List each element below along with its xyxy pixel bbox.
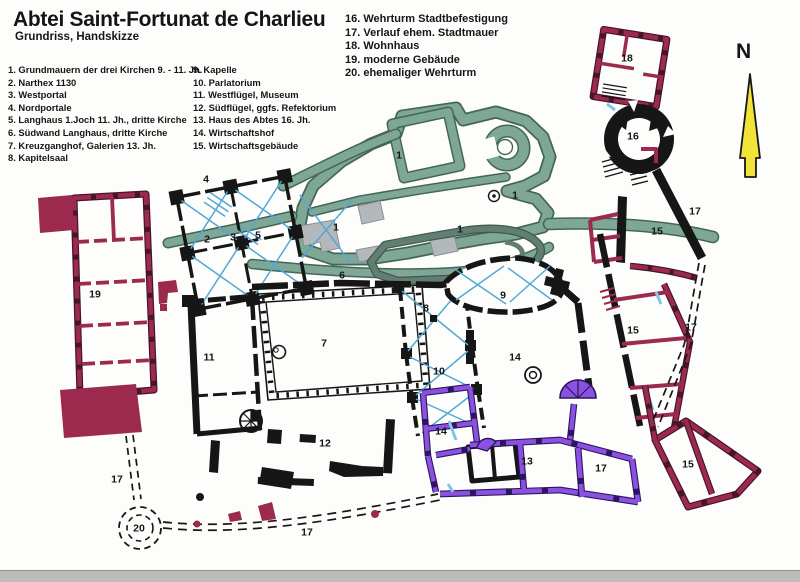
legend-column-1: 1. Grundmauern der drei Kirchen 9. - 11.… [8, 64, 202, 165]
plan-label-14: 14 [509, 353, 521, 363]
plan-label-11: 11 [203, 353, 214, 363]
plan-label-17: 17 [595, 464, 607, 474]
city-wall-bar [616, 196, 627, 263]
scanned-floor-plan-page: Abtei Saint-Fortunat de Charlieu Grundri… [0, 0, 800, 582]
page-title: Abtei Saint-Fortunat de Charlieu [13, 8, 325, 32]
plan-label-4: 4 [203, 175, 209, 185]
tower-16 [599, 100, 676, 185]
plan-label-15: 15 [651, 227, 663, 237]
abbots-house-purple [422, 380, 638, 502]
legend-item: 10. Parlatorium [193, 77, 336, 90]
compass-arrow [740, 74, 760, 177]
legend-item: 18. Wohnhaus [345, 40, 508, 54]
courtyard-well [525, 367, 541, 383]
legend-item: 16. Wehrturm Stadtbefestigung [345, 13, 508, 27]
plan-label-3: 3 [230, 233, 236, 243]
plan-label-15: 15 [682, 460, 694, 470]
legend-item: 4. Nordportale [8, 102, 202, 115]
legend-item: 17. Verlauf ehem. Stadtmauer [345, 27, 508, 41]
plan-label-19: 19 [89, 290, 101, 300]
legend-column-3: 16. Wehrturm Stadtbefestigung17. Verlauf… [345, 13, 508, 81]
round-chapel [480, 131, 524, 165]
maroon-fragment-west [158, 280, 178, 304]
legend-item: 14. Wirtschaftshof [193, 127, 336, 140]
plan-label-17: 17 [301, 528, 313, 538]
plan-label-8: 8 [423, 304, 429, 314]
plan-label-9: 9 [500, 291, 506, 301]
column-base-circle [489, 191, 500, 202]
legend-item: 19. moderne Gebäude [345, 54, 508, 68]
plan-label-15: 15 [627, 326, 639, 336]
plan-label-17: 17 [689, 207, 701, 217]
legend-item: 15. Wirtschaftsgebäude [193, 140, 336, 153]
legend-item: 13. Haus des Abtes 16. Jh. [193, 114, 336, 127]
plan-label-1: 1 [396, 151, 402, 161]
legend-item: 3. Westportal [8, 89, 202, 102]
plan-label-20: 20 [133, 524, 145, 534]
legend-item: 2. Narthex 1130 [8, 77, 202, 90]
cloister-courtyard [258, 285, 430, 400]
building-19 [38, 194, 167, 438]
wall-fragments-maroon [194, 502, 380, 528]
legend-item: 9. Kapelle [193, 64, 336, 77]
plan-label-1: 1 [333, 223, 339, 233]
plan-label-1: 1 [457, 225, 463, 235]
legend-column-2: 9. Kapelle10. Parlatorium11. Westflügel,… [193, 64, 336, 152]
plan-label-16: 16 [627, 132, 639, 142]
scan-edge-strip [0, 570, 800, 582]
legend-item: 7. Kreuzganghof, Galerien 13. Jh. [8, 140, 202, 153]
cloister-well [273, 346, 286, 359]
plan-label-5: 5 [255, 231, 261, 241]
plan-label-2: 2 [204, 235, 210, 245]
legend-item: 5. Langhaus 1.Joch 11. Jh., dritte Kirch… [8, 114, 202, 127]
plan-label-18: 18 [621, 54, 633, 64]
plan-label-17: 17 [111, 475, 123, 485]
plan-label-1: 1 [512, 191, 518, 201]
compass-north-label: N [736, 40, 751, 64]
plan-label-17: 17 [685, 323, 697, 333]
plan-label-12: 12 [319, 439, 331, 449]
legend-item: 6. Südwand Langhaus, dritte Kirche [8, 127, 202, 140]
building-18 [593, 29, 667, 106]
legend-item: 20. ehemaliger Wehrturm [345, 67, 508, 81]
legend-item: 11. Westflügel, Museum [193, 89, 336, 102]
plan-label-10: 10 [433, 367, 445, 377]
legend-item: 12. Südflügel, ggfs. Refektorium [193, 102, 336, 115]
plan-label-13: 13 [521, 457, 533, 467]
plan-label-6: 6 [339, 271, 345, 281]
plan-label-7: 7 [321, 339, 327, 349]
legend-item: 8. Kapitelsaal [8, 152, 202, 165]
building-15-lower [645, 386, 758, 507]
legend-item: 1. Grundmauern der drei Kirchen 9. - 11.… [8, 64, 202, 77]
plan-label-14: 14 [435, 427, 447, 437]
page-subtitle: Grundriss, Handskizze [15, 31, 139, 43]
